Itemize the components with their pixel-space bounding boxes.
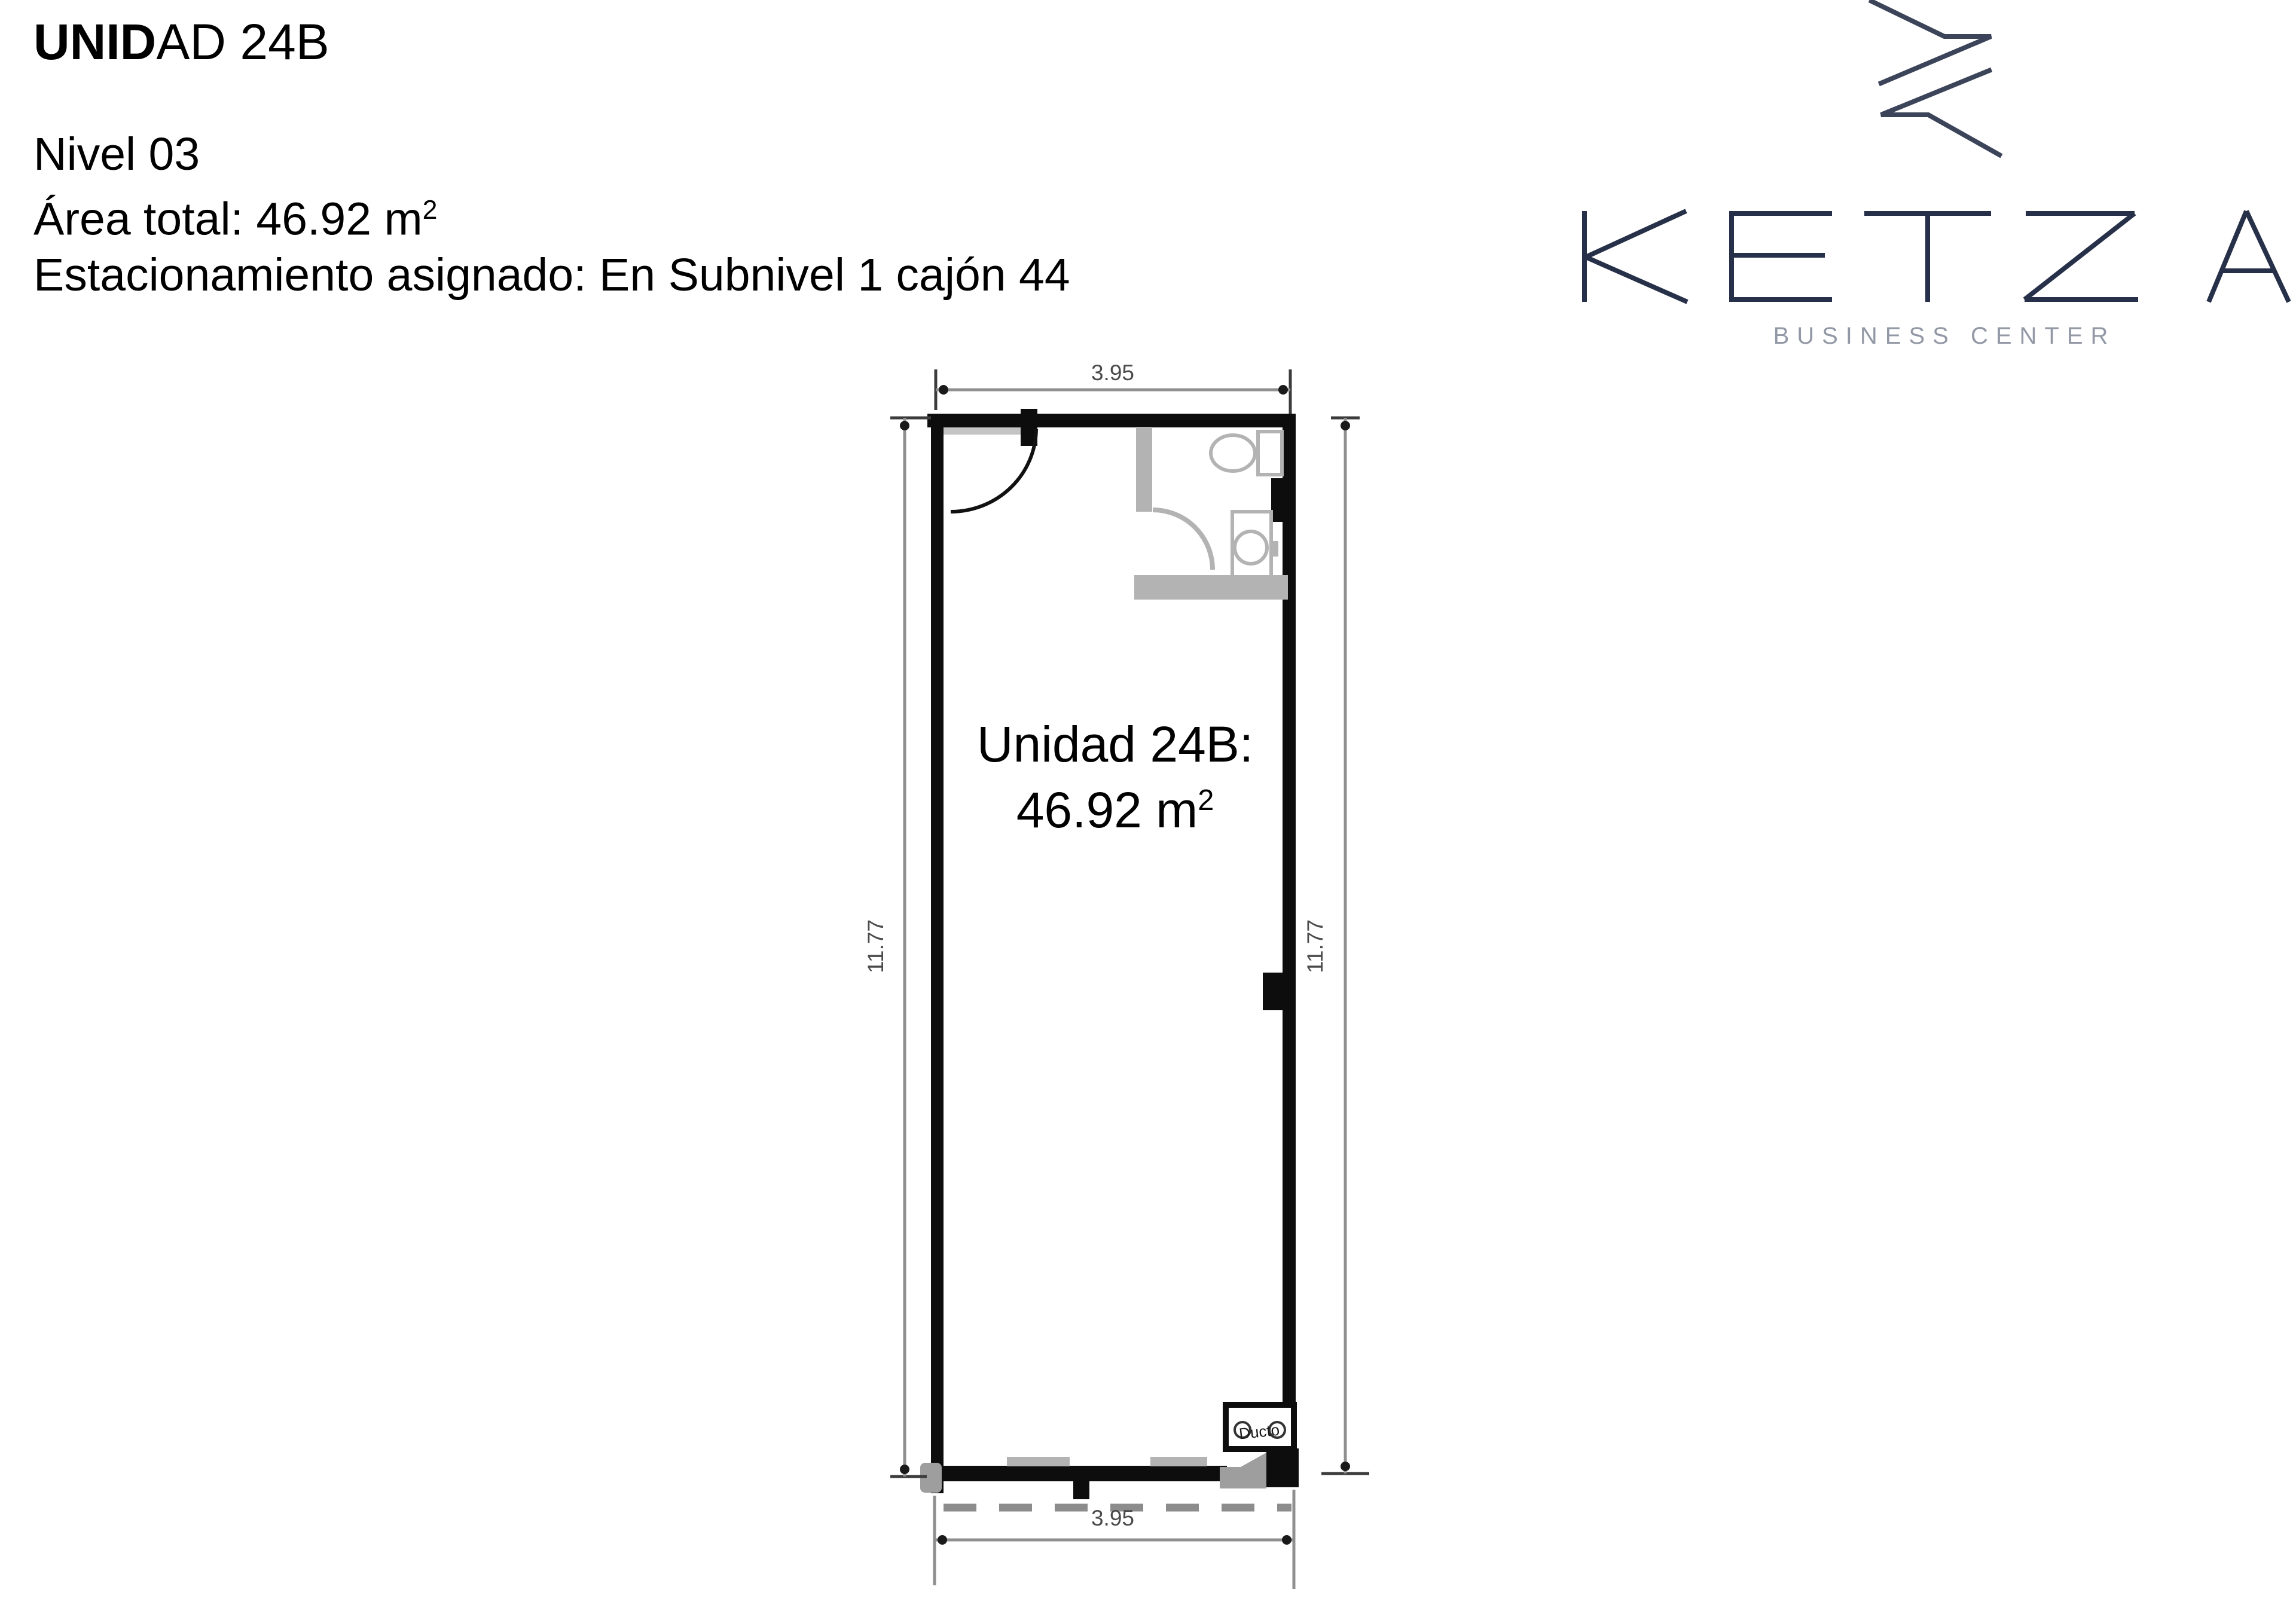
dim-left-value: 11.77 bbox=[863, 919, 888, 973]
sink-basin bbox=[1235, 531, 1267, 564]
dim-top-value: 3.95 bbox=[1091, 360, 1134, 385]
sink-faucet bbox=[1271, 541, 1278, 557]
dim-right-value: 11.77 bbox=[1303, 919, 1327, 973]
ketza-logo: KETZA BUSINESS CENTER bbox=[1584, 1, 2289, 349]
dim-right: 11.77 bbox=[1303, 418, 1369, 1474]
dim-left: 11.77 bbox=[863, 418, 931, 1477]
duct-detail: Ducto bbox=[1220, 1405, 1299, 1488]
duct-shaft-black bbox=[1266, 1448, 1299, 1487]
wall-right bbox=[1283, 414, 1296, 1466]
duct-gray-wedge bbox=[1241, 1453, 1266, 1467]
window-sill-left bbox=[1007, 1457, 1070, 1466]
window-mullion bbox=[1073, 1466, 1089, 1499]
sink bbox=[1232, 512, 1278, 582]
wall-left bbox=[931, 414, 944, 1493]
toilet bbox=[1211, 432, 1282, 475]
wall-top bbox=[927, 414, 1296, 427]
ketza-tagline: BUSINESS CENTER bbox=[1773, 323, 2116, 349]
duct-gray-base bbox=[1220, 1467, 1266, 1488]
room-label: Unidad 24B: 46.92 m2 bbox=[975, 716, 1256, 838]
bathroom bbox=[1134, 427, 1296, 600]
dim-top: 3.95 bbox=[936, 360, 1290, 414]
bathroom-counter bbox=[1134, 575, 1288, 600]
bathroom-door-swing-arc bbox=[1153, 510, 1213, 570]
toilet-bowl bbox=[1211, 435, 1255, 471]
toilet-tank bbox=[1258, 432, 1282, 475]
dim-bottom-value: 3.95 bbox=[1091, 1506, 1134, 1530]
bathroom-partition-wall bbox=[1136, 427, 1152, 512]
ketza-wordmark-text: KETZA bbox=[1791, 200, 2080, 300]
room-label-name: Unidad 24B: bbox=[975, 716, 1256, 772]
right-wall-column bbox=[1263, 973, 1296, 1010]
room-label-area: 46.92 m2 bbox=[975, 772, 1256, 838]
window-sill-right bbox=[1150, 1457, 1207, 1466]
duct-shaft-column bbox=[1271, 478, 1296, 522]
floor-plan-sheet: UNIDAD 24B Nivel 03 Área total: 46.92 m2… bbox=[0, 0, 2296, 1617]
ketza-zigzag-icon bbox=[1871, 1, 1999, 155]
